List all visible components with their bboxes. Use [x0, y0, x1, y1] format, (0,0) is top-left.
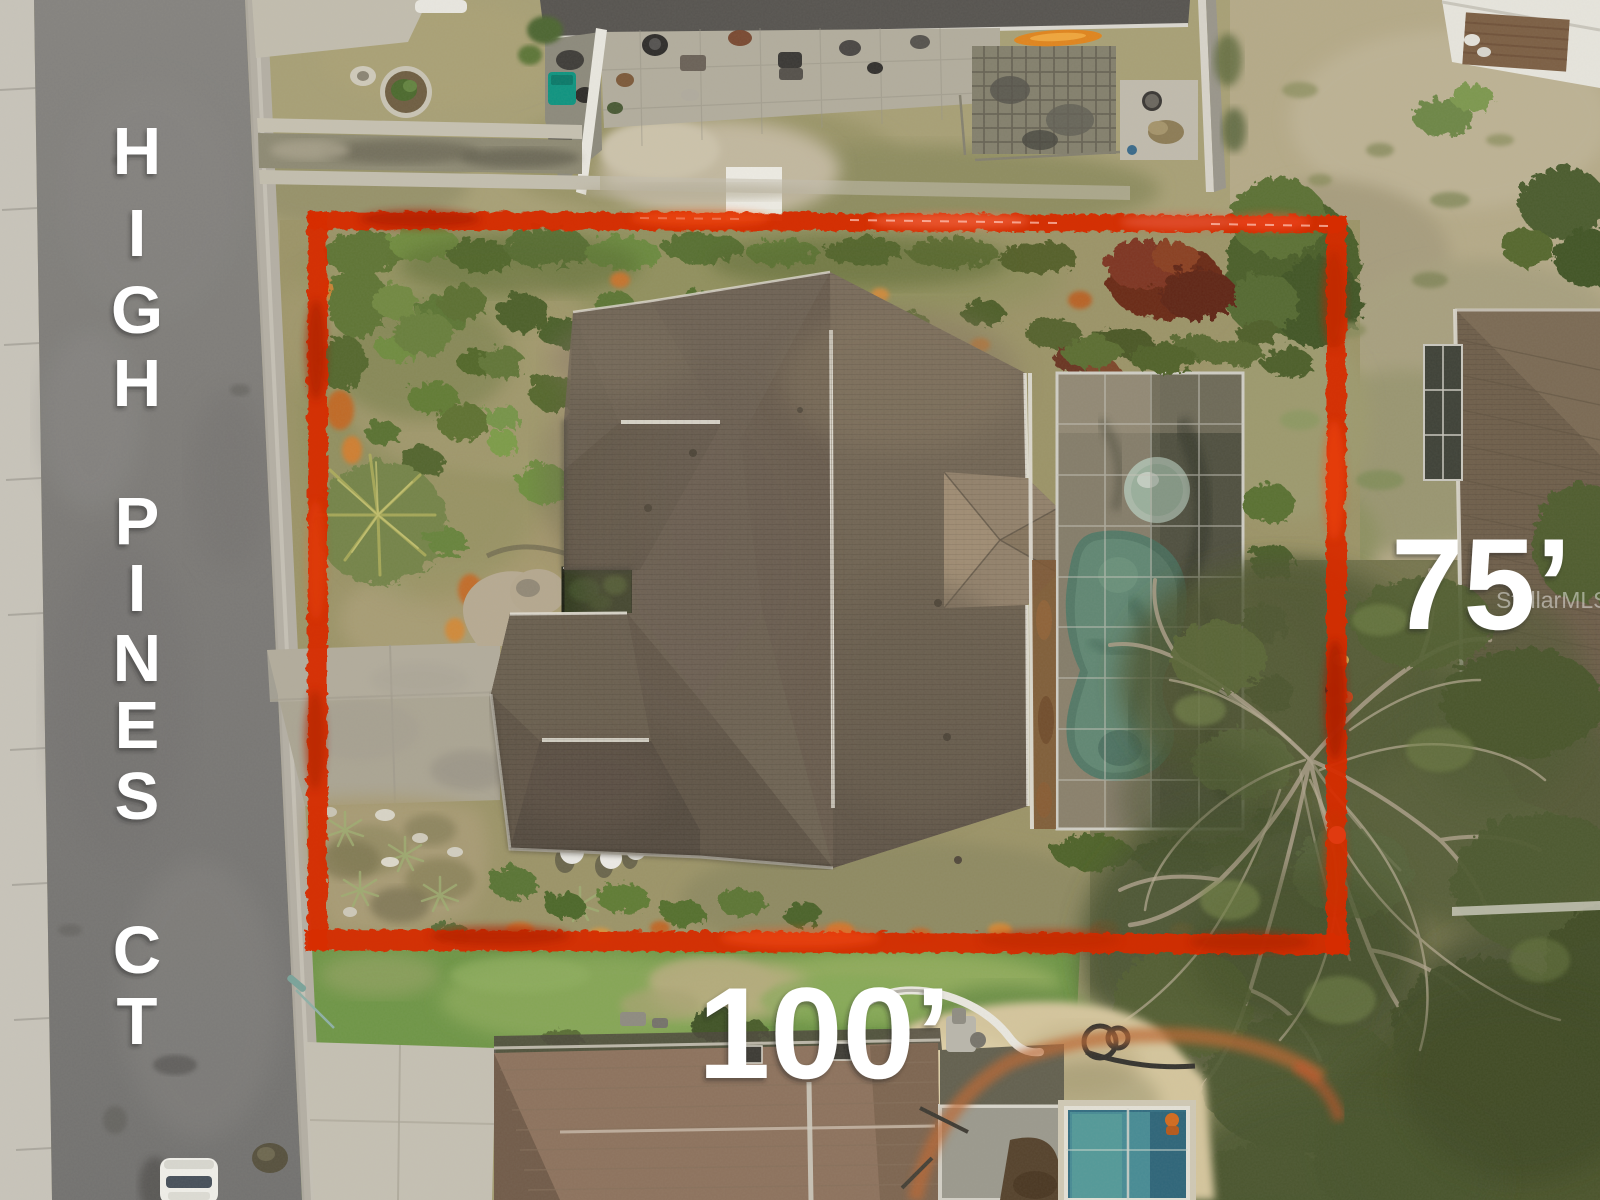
- svg-text:I: I: [128, 551, 147, 626]
- svg-text:N: N: [113, 621, 161, 696]
- svg-text:E: E: [115, 688, 160, 763]
- svg-text:100’: 100’: [698, 960, 951, 1106]
- svg-text:I: I: [128, 196, 147, 271]
- svg-text:H: H: [113, 346, 161, 421]
- svg-text:StellarMLS: StellarMLS: [1496, 587, 1600, 613]
- svg-text:G: G: [111, 273, 163, 348]
- svg-text:P: P: [115, 484, 160, 559]
- svg-text:S: S: [115, 759, 160, 834]
- svg-text:T: T: [117, 984, 158, 1059]
- svg-text:C: C: [113, 913, 161, 988]
- svg-text:75’: 75’: [1391, 511, 1572, 657]
- svg-text:H: H: [113, 114, 161, 189]
